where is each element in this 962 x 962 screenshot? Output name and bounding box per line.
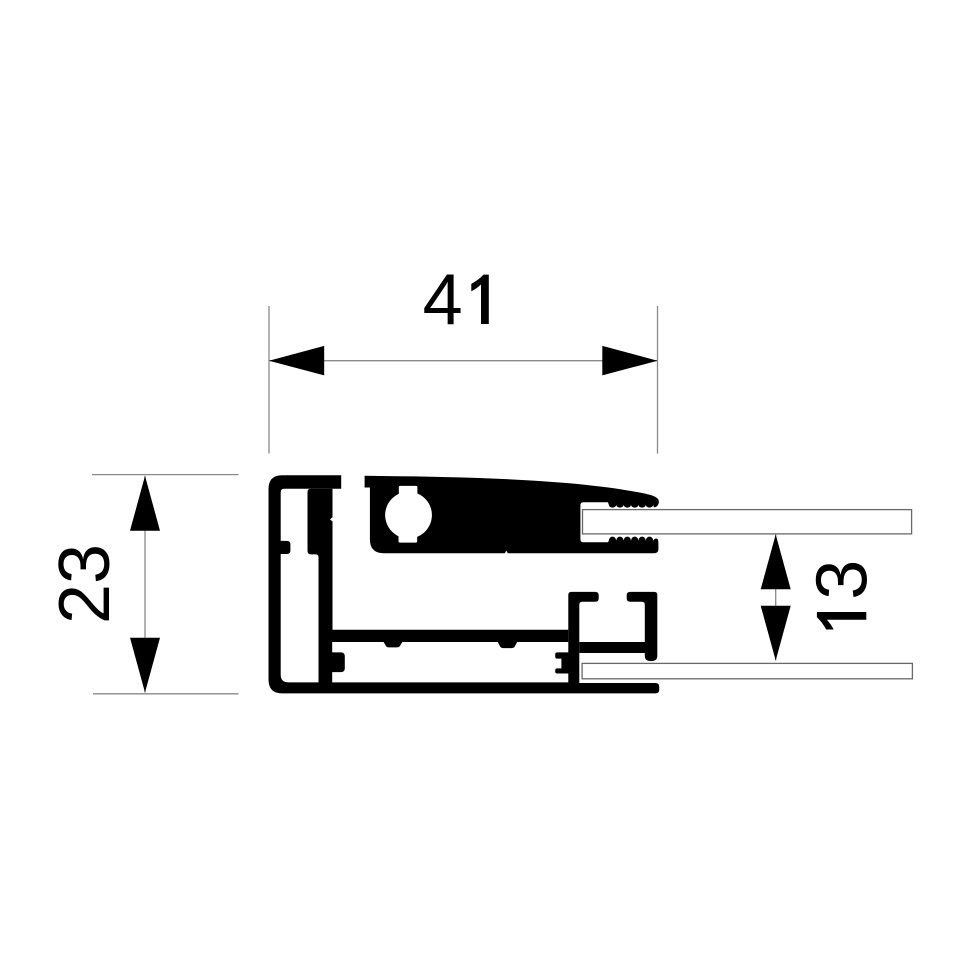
svg-text:4: 4 <box>423 261 463 341</box>
svg-text:23: 23 <box>45 544 125 624</box>
svg-text:3: 3 <box>802 560 882 600</box>
